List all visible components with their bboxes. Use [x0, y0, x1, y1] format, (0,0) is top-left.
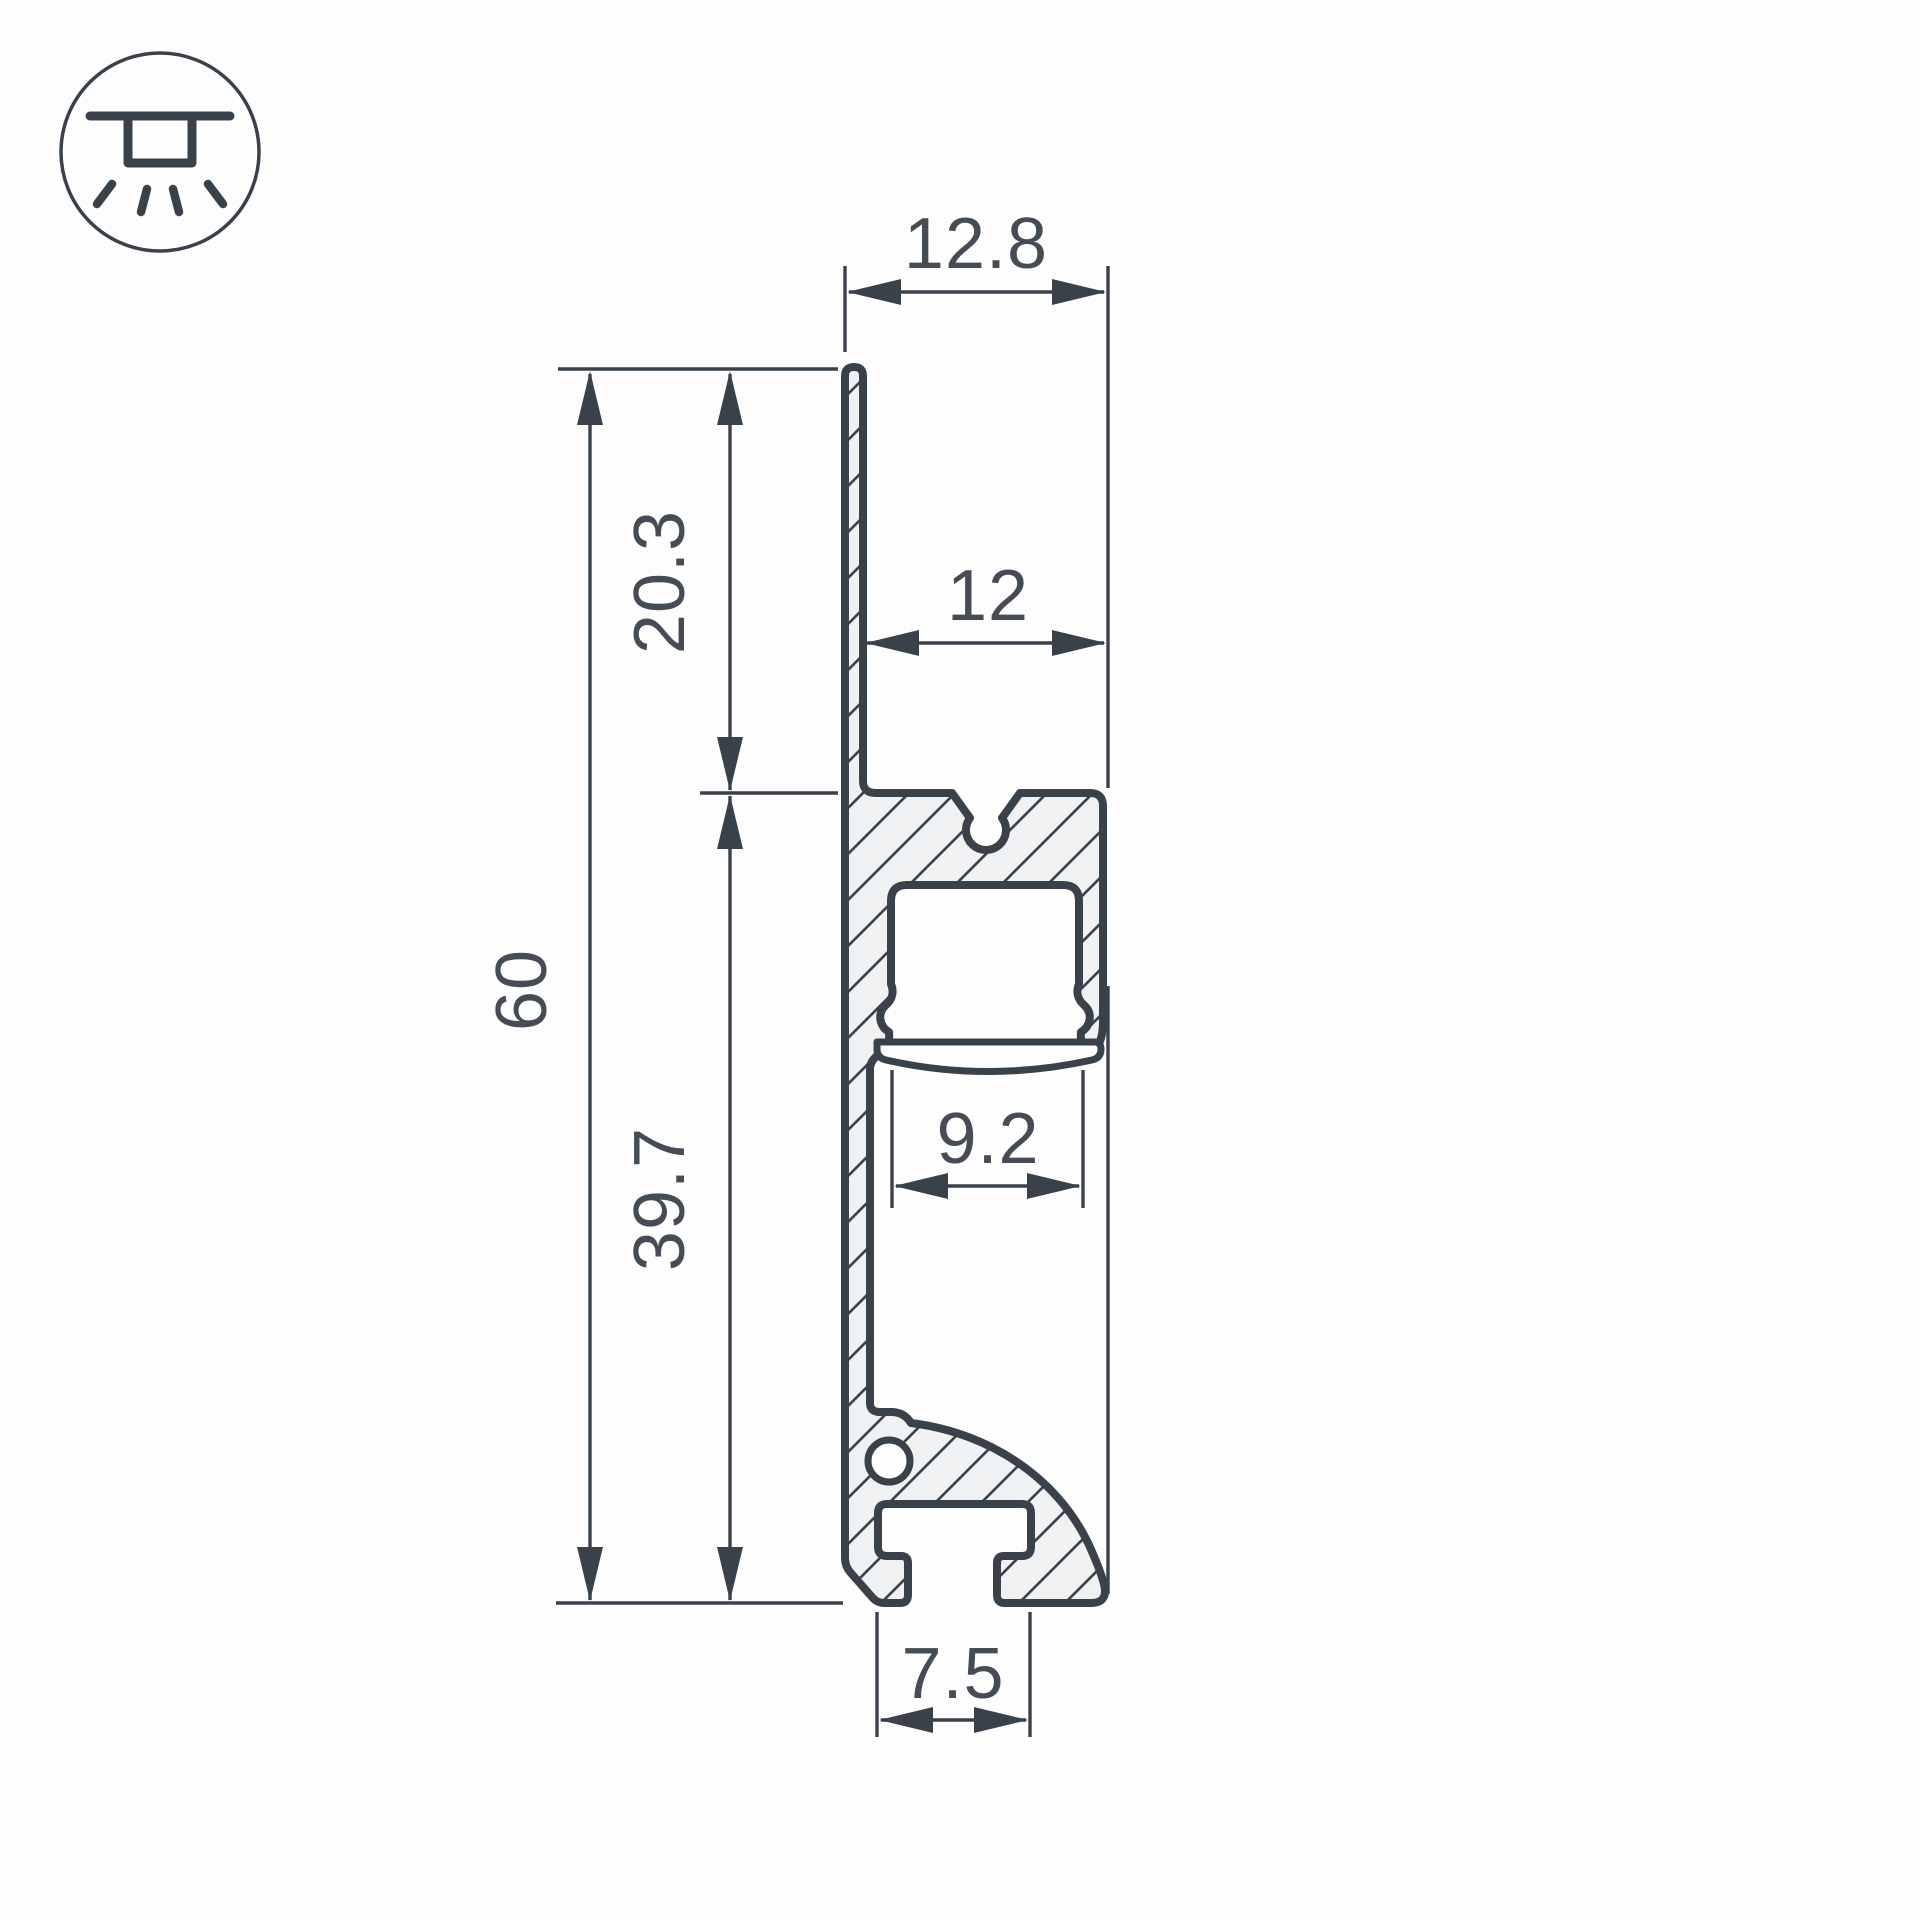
arrowhead-up	[577, 371, 603, 425]
dim-overall-depth-top-label: 12.8	[904, 204, 1048, 284]
technical-drawing: 12.8 12 60 20.3 39.7 9.2 7	[0, 0, 1920, 1920]
dim-channel-depth-label: 12	[947, 556, 1029, 636]
dimension-overall-height: 60	[482, 371, 603, 1601]
extension-lines	[556, 266, 1108, 1737]
icon-fixture-box	[128, 116, 192, 163]
dim-upper-height-label: 20.3	[620, 510, 700, 654]
dimension-channel-depth: 12	[865, 556, 1106, 656]
drawing-canvas: 12.8 12 60 20.3 39.7 9.2 7	[0, 0, 1920, 1920]
icon-light-rays	[97, 184, 223, 212]
dim-overall-height-label: 60	[482, 949, 562, 1031]
dimension-overall-depth-top: 12.8	[847, 204, 1106, 305]
arrowhead-left	[847, 279, 901, 305]
arrowhead-up	[717, 371, 743, 425]
recessed-ceiling-light-icon	[61, 53, 259, 251]
arrowhead-up	[717, 795, 743, 849]
arrowhead-left	[865, 630, 919, 656]
arrowhead-down	[717, 1547, 743, 1601]
foot-spring-notch	[868, 1440, 910, 1482]
dim-slot-width-label: 7.5	[901, 1634, 1004, 1714]
dim-lower-height-label: 39.7	[620, 1127, 700, 1271]
dimension-upper-height: 20.3	[620, 371, 743, 791]
profile-cross-section	[845, 367, 1105, 1603]
dimension-slot-width: 7.5	[879, 1634, 1028, 1733]
arrowhead-right	[1052, 630, 1106, 656]
dimension-lower-height: 39.7	[620, 795, 743, 1601]
arrowhead-right	[1052, 279, 1106, 305]
arrowhead-down	[577, 1547, 603, 1601]
dimension-opening-width: 9.2	[894, 1099, 1081, 1199]
dim-opening-width-label: 9.2	[936, 1099, 1039, 1179]
diffuser-lens	[877, 1042, 1101, 1072]
icon-circle	[61, 53, 259, 251]
arrowhead-down	[717, 737, 743, 791]
